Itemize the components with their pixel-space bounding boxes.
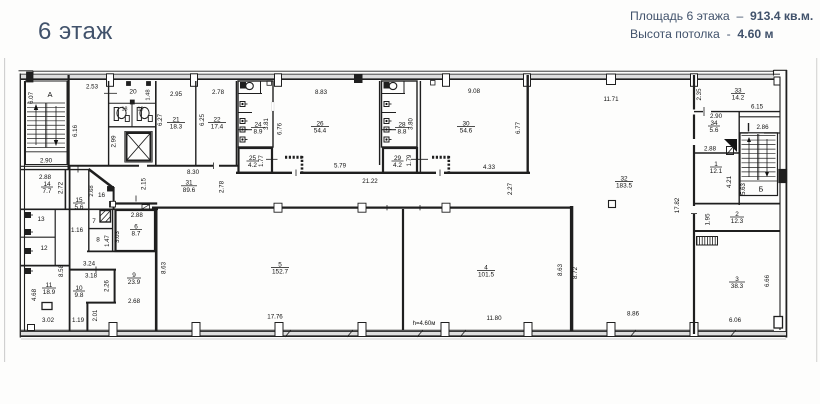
svg-text:1.77: 1.77: [259, 155, 265, 167]
svg-text:23.9: 23.9: [128, 279, 141, 286]
svg-text:6.77: 6.77: [515, 121, 522, 134]
svg-text:8.8: 8.8: [398, 129, 407, 136]
svg-text:54.4: 54.4: [314, 128, 327, 135]
svg-text:2.35: 2.35: [696, 88, 703, 101]
svg-text:2.53: 2.53: [86, 84, 99, 91]
svg-text:6.06: 6.06: [729, 317, 742, 324]
svg-text:3.24: 3.24: [83, 261, 96, 268]
svg-text:2.95: 2.95: [170, 91, 183, 98]
svg-text:17.76: 17.76: [267, 314, 283, 321]
svg-text:1.19: 1.19: [72, 317, 85, 324]
svg-text:А: А: [47, 90, 52, 99]
svg-text:2.90: 2.90: [710, 113, 723, 120]
svg-text:3.18: 3.18: [85, 273, 98, 280]
svg-text:2.78: 2.78: [212, 89, 225, 96]
svg-text:1.79: 1.79: [407, 154, 413, 166]
svg-text:2.88: 2.88: [704, 146, 717, 153]
svg-text:1.16: 1.16: [71, 227, 84, 234]
svg-text:38.3: 38.3: [731, 283, 744, 290]
svg-text:9.08: 9.08: [468, 88, 481, 95]
svg-text:5.63: 5.63: [741, 183, 747, 195]
svg-text:13: 13: [37, 216, 45, 223]
svg-text:4.2: 4.2: [248, 162, 257, 169]
svg-text:89.6: 89.6: [183, 187, 196, 194]
svg-text:11.80: 11.80: [486, 315, 502, 322]
svg-text:8.7: 8.7: [132, 231, 141, 238]
svg-text:18: 18: [122, 107, 128, 113]
svg-text:h=4.60м: h=4.60м: [413, 321, 436, 327]
svg-text:7.7: 7.7: [43, 188, 52, 195]
svg-text:4.68: 4.68: [31, 288, 38, 301]
svg-text:6.76: 6.76: [277, 122, 284, 135]
svg-text:183.5: 183.5: [616, 183, 632, 190]
svg-text:11.71: 11.71: [603, 96, 619, 103]
svg-text:3.03: 3.03: [115, 231, 121, 243]
svg-text:4.2: 4.2: [393, 162, 402, 169]
svg-text:18.3: 18.3: [170, 124, 183, 131]
svg-text:8.30: 8.30: [187, 169, 200, 176]
svg-text:17.4: 17.4: [211, 124, 224, 131]
svg-text:1.95: 1.95: [705, 213, 712, 226]
svg-text:3.81: 3.81: [264, 118, 270, 130]
svg-text:2.72: 2.72: [58, 181, 65, 194]
svg-text:8.63: 8.63: [557, 263, 564, 276]
svg-text:2.78: 2.78: [219, 180, 226, 193]
svg-text:8.58: 8.58: [58, 264, 65, 277]
svg-text:14.2: 14.2: [732, 95, 745, 102]
svg-text:2.68: 2.68: [128, 298, 141, 305]
svg-text:2.01: 2.01: [93, 309, 99, 321]
svg-text:2.99: 2.99: [111, 135, 118, 148]
svg-text:1.47: 1.47: [105, 235, 111, 247]
svg-text:4.33: 4.33: [483, 164, 496, 171]
svg-text:12.1: 12.1: [710, 168, 723, 175]
svg-text:8.83: 8.83: [315, 89, 328, 96]
svg-text:6.25: 6.25: [199, 113, 206, 126]
svg-text:2.27: 2.27: [507, 182, 514, 195]
svg-text:2.88: 2.88: [131, 212, 144, 219]
svg-text:12: 12: [40, 245, 48, 252]
svg-text:16: 16: [98, 192, 106, 199]
svg-text:2.68: 2.68: [89, 185, 95, 196]
svg-text:8.9: 8.9: [254, 129, 263, 136]
svg-text:3.02: 3.02: [42, 317, 55, 324]
svg-text:8.72: 8.72: [572, 266, 579, 279]
svg-text:1.48: 1.48: [146, 89, 152, 100]
svg-text:5.79: 5.79: [334, 163, 347, 170]
svg-text:19: 19: [138, 107, 144, 113]
svg-text:7: 7: [92, 218, 96, 225]
svg-text:5.6: 5.6: [710, 127, 719, 134]
svg-text:6.07: 6.07: [28, 91, 35, 104]
svg-text:8.63: 8.63: [161, 261, 168, 274]
svg-text:2.15: 2.15: [141, 177, 148, 190]
svg-text:152.7: 152.7: [272, 269, 288, 276]
svg-text:21.22: 21.22: [362, 178, 378, 185]
svg-text:20: 20: [129, 89, 137, 96]
svg-text:9.8: 9.8: [75, 292, 84, 299]
svg-text:8.86: 8.86: [627, 311, 640, 318]
svg-text:18.9: 18.9: [43, 289, 56, 296]
svg-text:2.86: 2.86: [756, 124, 769, 131]
svg-text:2.88: 2.88: [39, 174, 52, 181]
svg-text:6.27: 6.27: [157, 113, 164, 126]
svg-text:3.80: 3.80: [409, 118, 415, 130]
svg-text:12.3: 12.3: [731, 218, 744, 225]
svg-text:5.6: 5.6: [75, 204, 84, 211]
svg-text:8: 8: [96, 237, 100, 244]
svg-text:Б: Б: [759, 185, 764, 194]
svg-text:101.5: 101.5: [478, 272, 494, 279]
svg-text:2.26: 2.26: [105, 280, 111, 292]
svg-text:4.21: 4.21: [726, 175, 733, 188]
svg-text:2.90: 2.90: [40, 158, 53, 165]
svg-text:6.66: 6.66: [764, 274, 771, 287]
svg-text:6.16: 6.16: [72, 124, 79, 137]
svg-text:54.6: 54.6: [460, 128, 473, 135]
svg-text:6.15: 6.15: [751, 104, 764, 111]
svg-text:17.82: 17.82: [674, 197, 681, 213]
